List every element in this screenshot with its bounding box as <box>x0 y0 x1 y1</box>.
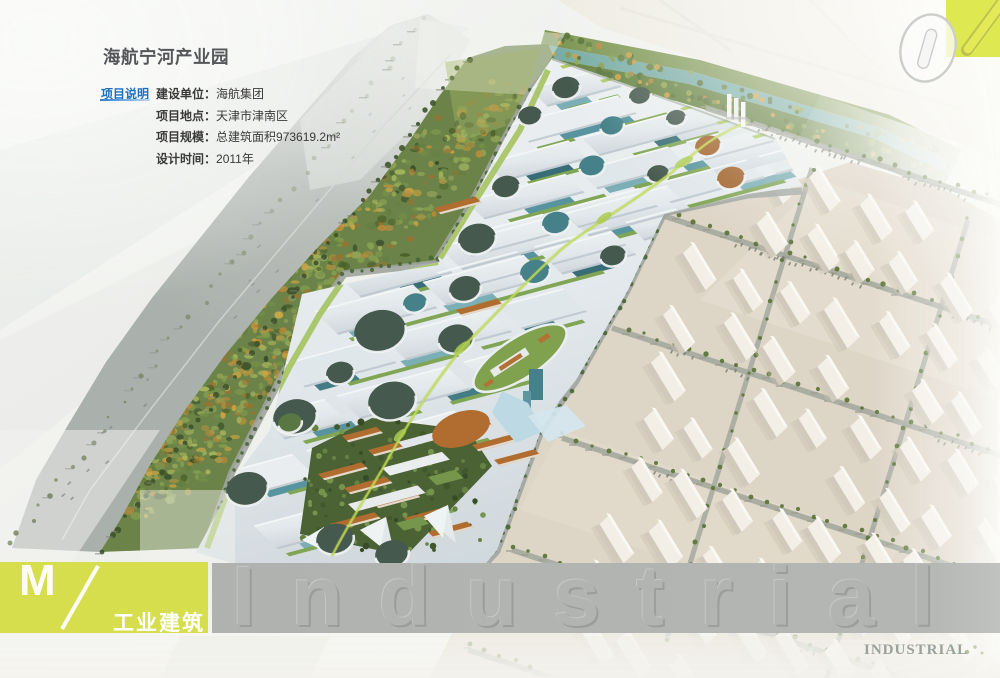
svg-text:Industrial: Industrial <box>232 563 970 633</box>
